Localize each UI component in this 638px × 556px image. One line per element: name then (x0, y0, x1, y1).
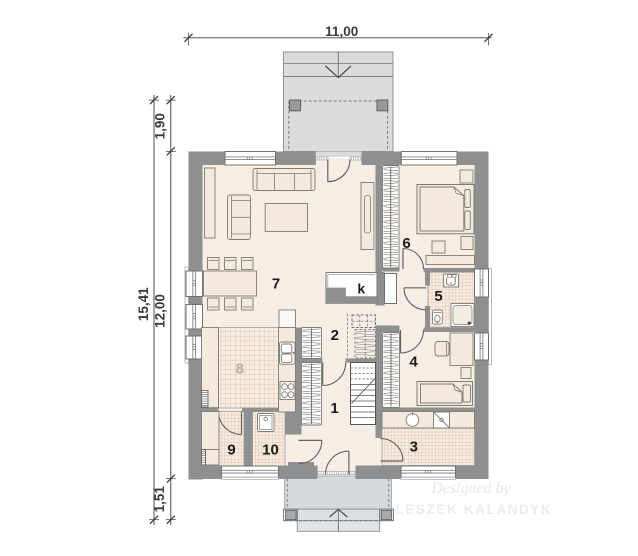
svg-text:7: 7 (272, 276, 280, 293)
svg-text:1,90: 1,90 (153, 113, 168, 139)
svg-text:2: 2 (331, 327, 339, 344)
svg-text:1,51: 1,51 (152, 486, 167, 513)
svg-text:4: 4 (409, 354, 418, 371)
svg-text:8: 8 (236, 361, 244, 378)
svg-text:k: k (357, 280, 365, 296)
svg-text:5: 5 (434, 288, 442, 305)
svg-text:11,00: 11,00 (325, 24, 358, 39)
svg-text:Designed by: Designed by (430, 480, 511, 497)
svg-text:15,41: 15,41 (136, 287, 151, 321)
svg-text:6: 6 (402, 235, 410, 252)
svg-text:3: 3 (410, 439, 418, 456)
svg-text:LESZEK KALANDYK: LESZEK KALANDYK (396, 502, 553, 517)
svg-text:1: 1 (330, 400, 338, 417)
svg-text:12,00: 12,00 (153, 294, 168, 328)
svg-text:9: 9 (227, 442, 235, 459)
svg-text:10: 10 (262, 442, 279, 459)
